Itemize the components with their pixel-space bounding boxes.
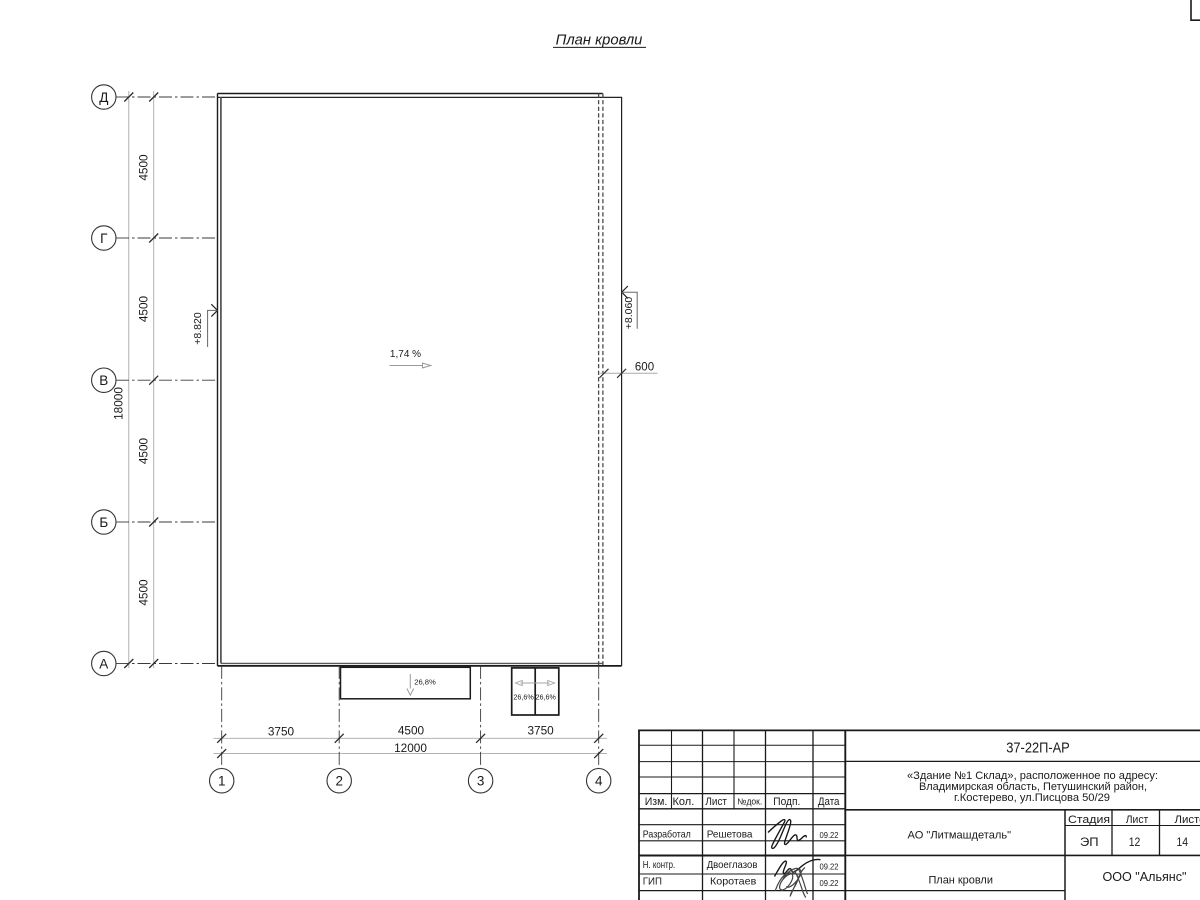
svg-text:1,74 %: 1,74 %: [390, 349, 421, 360]
svg-text:г.Костерево, ул.Писцова 50/29: г.Костерево, ул.Писцова 50/29: [954, 792, 1110, 804]
svg-text:4500: 4500: [137, 437, 151, 464]
svg-text:3750: 3750: [527, 724, 554, 738]
svg-text:№док.: №док.: [737, 797, 762, 807]
svg-text:4: 4: [595, 774, 603, 789]
svg-text:Дата: Дата: [818, 796, 840, 808]
svg-text:12: 12: [1129, 835, 1141, 849]
svg-text:600: 600: [635, 361, 654, 373]
svg-text:Разработал: Разработал: [643, 828, 691, 840]
svg-text:12000: 12000: [394, 741, 427, 755]
svg-text:3750: 3750: [268, 724, 295, 738]
svg-text:26,6%: 26,6%: [536, 693, 557, 702]
svg-text:А: А: [99, 656, 108, 671]
svg-text:Н. контр.: Н. контр.: [643, 860, 675, 871]
svg-text:37-22П-АР: 37-22П-АР: [1006, 740, 1070, 756]
svg-text:+8.820: +8.820: [192, 312, 204, 345]
svg-text:14: 14: [1177, 835, 1189, 849]
svg-text:Лист: Лист: [1126, 814, 1149, 826]
svg-text:Г: Г: [100, 231, 108, 246]
svg-text:Кол.: Кол.: [673, 796, 695, 808]
svg-text:09.22: 09.22: [820, 830, 839, 840]
svg-text:4500: 4500: [137, 295, 151, 322]
svg-text:1: 1: [218, 774, 226, 789]
svg-text:26,6%: 26,6%: [513, 693, 534, 702]
svg-text:Решетова: Решетова: [707, 829, 753, 840]
svg-text:09.22: 09.22: [820, 861, 839, 871]
svg-text:АО "Литмашдеталь": АО "Литмашдеталь": [908, 830, 1012, 842]
svg-text:Д: Д: [99, 90, 108, 105]
svg-text:Двоеглазов: Двоеглазов: [707, 860, 758, 871]
svg-text:4500: 4500: [398, 724, 425, 738]
svg-text:План кровли: План кровли: [556, 33, 643, 49]
svg-text:+8.060: +8.060: [623, 297, 635, 330]
svg-text:Б: Б: [99, 515, 108, 530]
svg-text:ЭП: ЭП: [1080, 835, 1099, 849]
svg-text:09.22: 09.22: [820, 878, 839, 888]
svg-text:4500: 4500: [137, 154, 151, 181]
svg-text:ГИП: ГИП: [643, 877, 662, 888]
svg-text:2: 2: [335, 774, 343, 789]
svg-text:Подп.: Подп.: [773, 796, 800, 808]
svg-text:18000: 18000: [112, 387, 126, 420]
svg-text:Стадия: Стадия: [1068, 814, 1110, 826]
svg-text:Лист: Лист: [705, 796, 727, 808]
svg-text:26,8%: 26,8%: [414, 678, 436, 687]
svg-text:ООО "Альянс": ООО "Альянс": [1103, 869, 1187, 884]
svg-text:Коротаев: Коротаев: [710, 877, 757, 888]
svg-text:4500: 4500: [137, 579, 151, 606]
svg-text:3: 3: [477, 774, 485, 789]
svg-text:План кровли: План кровли: [928, 874, 993, 886]
svg-text:Листов: Листов: [1174, 814, 1200, 826]
svg-text:Изм.: Изм.: [645, 796, 668, 808]
svg-text:В: В: [99, 373, 108, 388]
